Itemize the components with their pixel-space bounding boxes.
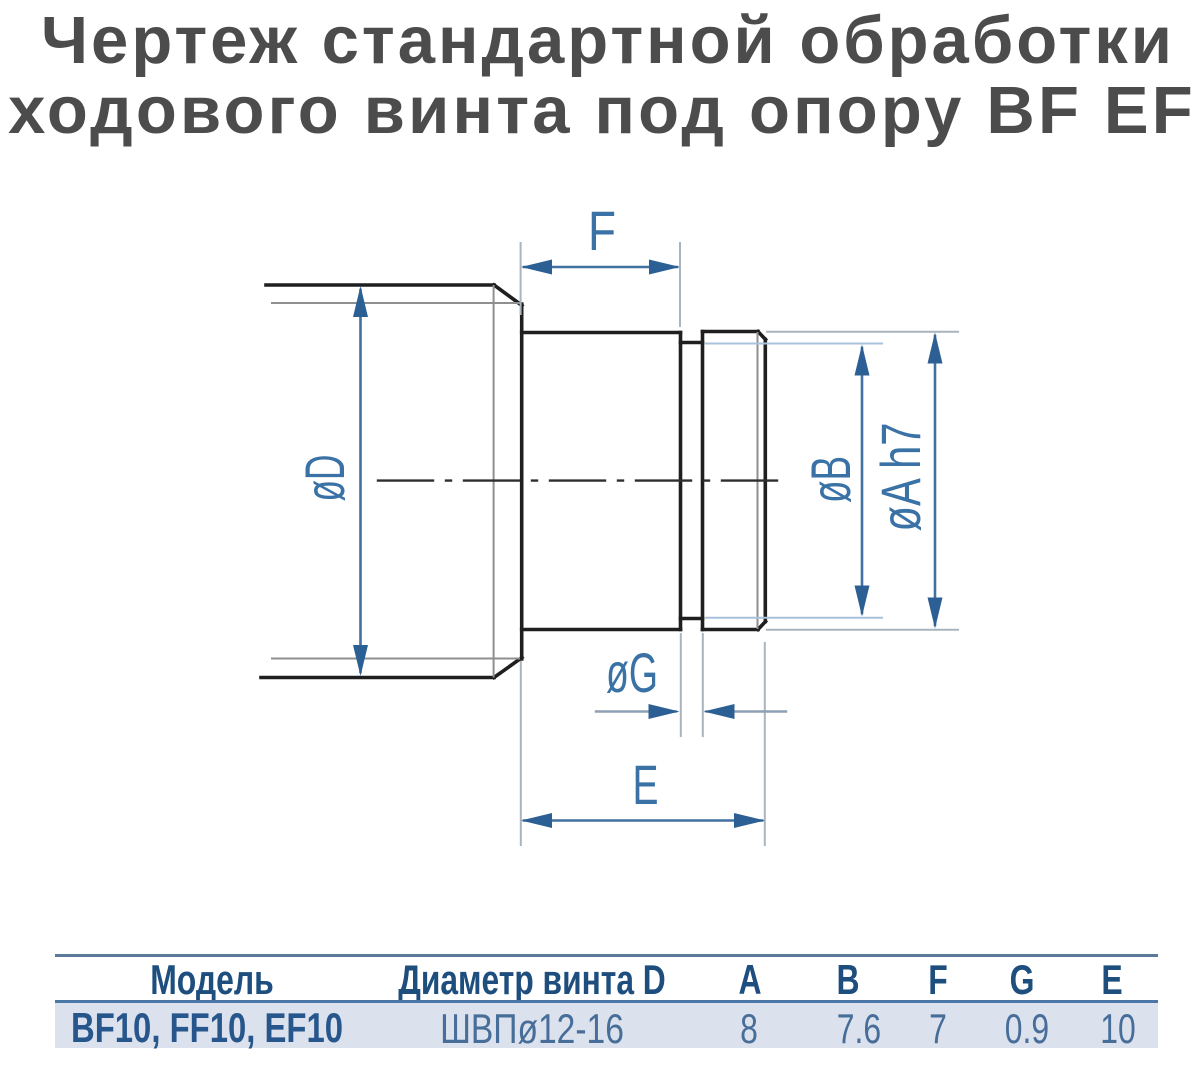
svg-text:øD: øD bbox=[293, 455, 356, 502]
svg-text:øG: øG bbox=[606, 641, 658, 704]
svg-text:F: F bbox=[588, 199, 616, 262]
svg-text:øA h7: øA h7 bbox=[869, 423, 932, 532]
svg-text:E: E bbox=[633, 753, 659, 816]
svg-text:øB: øB bbox=[799, 456, 862, 503]
